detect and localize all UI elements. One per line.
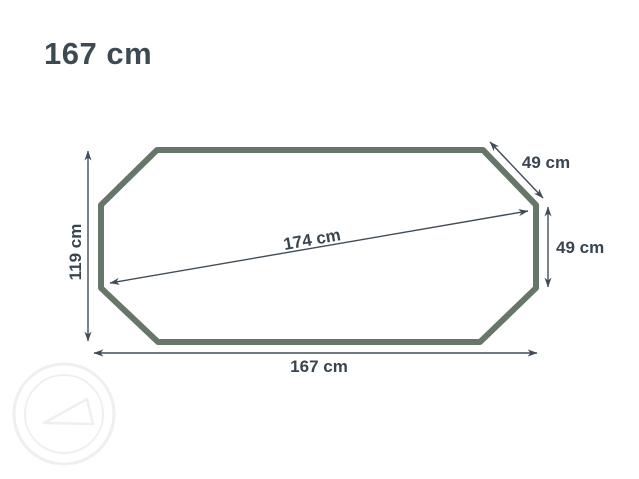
bottom-width-label: 167 cm — [290, 357, 348, 376]
left-height-label: 119 cm — [66, 224, 85, 281]
diagram-stage: 167 cm 119 cm 167 cm 49 cm 4 — [0, 0, 639, 479]
brand-watermark — [14, 364, 114, 464]
diagonal-label: 174 cm — [282, 225, 342, 254]
right-side-label: 49 cm — [556, 238, 604, 257]
top-corner-label: 49 cm — [522, 153, 570, 172]
dimension-diagram: 119 cm 167 cm 49 cm 49 cm 174 cm — [0, 0, 639, 479]
watermark-triangle-icon — [44, 399, 93, 424]
watermark-outer-ring-icon — [14, 364, 114, 464]
